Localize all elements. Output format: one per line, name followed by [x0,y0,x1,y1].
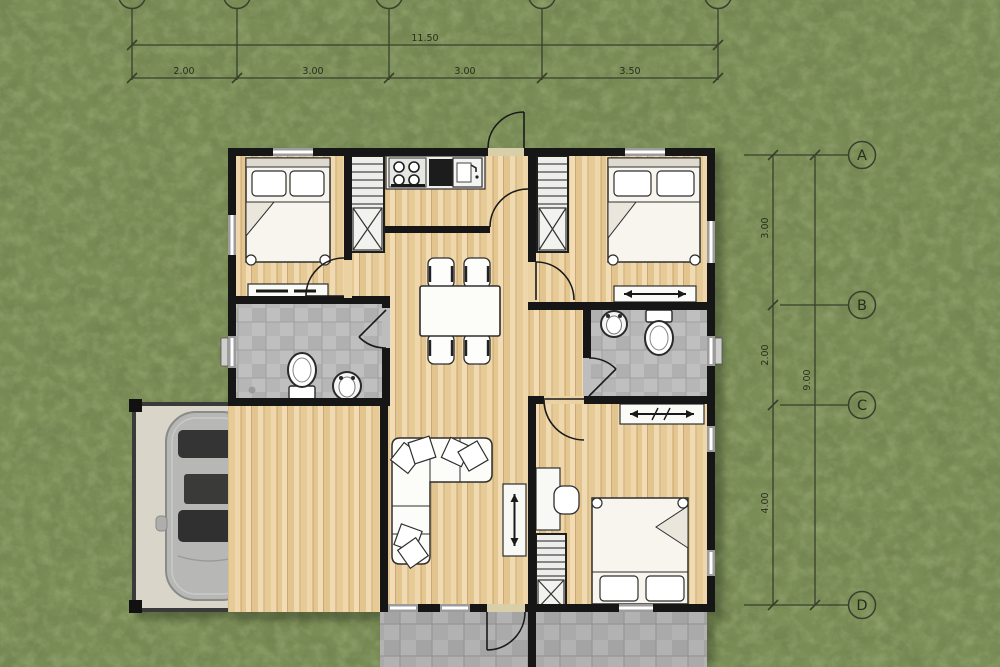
wall-bedroom1-bottom [236,296,390,304]
window-icon [270,148,316,156]
wall-living-left [380,404,388,612]
window-icon [616,604,656,612]
pillow [290,171,324,196]
bed-post [592,498,602,508]
wall-exterior-bottom [380,604,715,612]
floor-drain [249,387,256,394]
pillow [657,171,694,196]
wall-hall-right [528,302,536,310]
window-icon [707,550,715,576]
dim-label: 3.00 [302,66,323,77]
sink-icon [333,372,361,400]
window-icon [622,148,668,156]
desk-chair [554,486,579,514]
wall-exterior-right [707,148,715,612]
kitchen-sink-icon [453,158,482,187]
grid-label-C: C [857,398,867,414]
site-plan-svg: 11.50 2.00 3.00 3.00 3.50 3.00 2.00 4.00… [0,0,1000,667]
dresser [614,286,696,302]
pillow [252,171,286,196]
door-threshold [487,604,525,612]
porch-floor [380,610,707,667]
window-icon [707,218,715,266]
dim-label: 11.50 [411,33,438,44]
garage-wall-top [132,402,230,406]
wall-bath2-bottom [528,396,544,404]
bed-post [246,255,256,265]
car-mirror [156,516,167,531]
garage-wall-left [132,402,136,612]
dim-label: 2.00 [760,344,771,365]
wall-bedroom1-right [344,156,352,260]
window-icon [388,604,418,612]
car-roof [184,474,234,504]
pillow [600,576,638,601]
dim-label: 4.00 [760,492,771,513]
bed [592,498,688,604]
pillow [614,171,651,196]
stove-icon [389,158,426,187]
wall-porch-divider [528,612,536,667]
grid-label-D: D [856,598,867,614]
window-icon [440,604,470,612]
wardrobe-shelves [537,156,568,252]
wall-hall-right [528,156,536,262]
dining-chair [428,334,454,364]
dining-table [420,286,500,336]
wall-bath1-bottom [228,398,388,406]
door-threshold [488,148,524,156]
wall-bedroom2-bottom [536,302,707,310]
headboard [246,158,330,167]
dim-label: 3.00 [760,217,771,238]
garage-post [129,600,142,613]
pantry-shelves [351,156,384,252]
wall-bath1-right [382,296,390,308]
wall-bath1-right [382,348,390,406]
sink-icon [601,311,627,337]
bed [246,158,330,265]
bed-post [690,255,700,265]
toilet-icon [288,353,316,399]
grid-label-A: A [857,148,867,164]
dining-chair [464,258,490,288]
window-icon [707,426,715,452]
window-icon [707,336,722,366]
dim-label: 9.00 [802,369,813,390]
dining-chair [464,334,490,364]
pillow [646,576,684,601]
console [620,404,704,424]
dining-chair [428,258,454,288]
window-icon [221,336,236,368]
garage-post [129,399,142,412]
bed-post [608,255,618,265]
wall-bath2-bottom [584,396,707,404]
window-icon [228,212,236,258]
dim-label: 3.50 [619,66,640,77]
floor-plan-canvas: 11.50 2.00 3.00 3.00 3.50 3.00 2.00 4.00… [0,0,1000,667]
shelf-unit [536,534,566,610]
counter-dark [429,159,453,186]
grid-label-B: B [857,298,867,314]
wall-bedroom3-left [528,404,536,612]
wall-bath2-left [583,310,591,358]
dim-label: 3.00 [454,66,475,77]
toilet-icon [645,310,673,355]
tv-cabinet [503,484,526,556]
headboard [608,158,700,167]
dim-label: 2.00 [173,66,194,77]
bed [608,158,700,265]
